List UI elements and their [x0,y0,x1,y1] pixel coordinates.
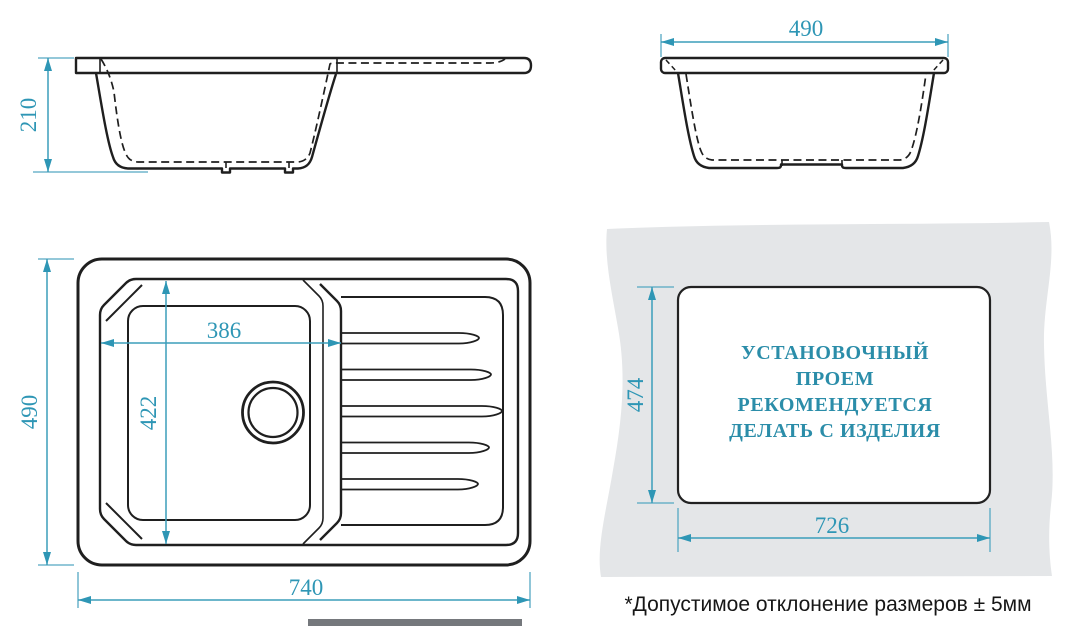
installation-cutout-view: УСТАНОВОЧНЫЙ ПРОЕМ РЕКОМЕНДУЕТСЯ ДЕЛАТЬ … [600,222,1053,616]
dim-arrow [43,259,51,272]
front-bowl-outer-wall [678,73,934,168]
front-rim-hidden-right [932,60,943,72]
front-rim-hidden-left [666,60,677,72]
side-section-view: 210 [16,58,531,173]
side-height-dim-label: 210 [16,98,41,133]
drainboard-groove [342,370,491,381]
side-bowl-hidden-contour [101,59,505,162]
dim-arrow [935,38,948,46]
front-section-view: 490 [661,16,948,168]
cutout-width-dim-label: 726 [815,513,850,538]
tolerance-footnote: *Допустимое отклонение размеров ± 5мм [624,593,1031,616]
cropped-bottom-bar [308,619,522,626]
bowl-width-dim-label: 386 [207,318,242,343]
side-rim-outline [76,58,531,73]
cutout-note-line: РЕКОМЕНДУЕТСЯ [738,394,933,416]
drain-hole-inner [249,388,298,437]
drainboard-groove [342,479,478,490]
dim-arrow [517,596,530,604]
cutout-note-line: ДЕЛАТЬ С ИЗДЕЛИЯ [729,420,941,442]
drainboard-groove [342,333,479,344]
dim-arrow [44,159,52,172]
side-bowl-outer-wall [96,73,336,173]
dim-arrow [162,531,170,544]
cutout-note-line: ПРОЕМ [796,368,874,390]
dim-arrow [101,339,114,347]
front-width-dim-label: 490 [789,16,824,41]
front-bowl-hidden-contour [686,74,926,160]
drain-hole-outer [243,382,304,443]
top-plan-view: 490 740 386 422 [17,259,530,608]
dim-arrow [328,339,341,347]
dim-arrow [661,38,674,46]
drainboard-panel [341,297,503,525]
front-rim-outline [661,58,948,73]
top-length-dim-label: 740 [289,575,324,600]
dim-arrow [162,281,170,294]
cutout-note-line: УСТАНОВОЧНЫЙ [741,341,929,364]
drainboard-groove [342,406,502,417]
bowl-depth-dim-label: 422 [136,396,161,431]
dim-arrow [43,552,51,565]
dim-arrow [78,596,91,604]
sink-technical-drawing: 210 490 [0,0,1086,626]
cutout-height-dim-label: 474 [623,377,648,412]
bowl-right-edge [303,280,323,544]
drawing-svg: 210 490 [0,0,1086,626]
drainboard-groove [342,443,489,454]
top-depth-dim-label: 490 [17,395,42,430]
bowl-chamfer-topleft [106,285,142,321]
dim-arrow [44,58,52,71]
bowl-chamfer-bottomleft [106,503,142,539]
